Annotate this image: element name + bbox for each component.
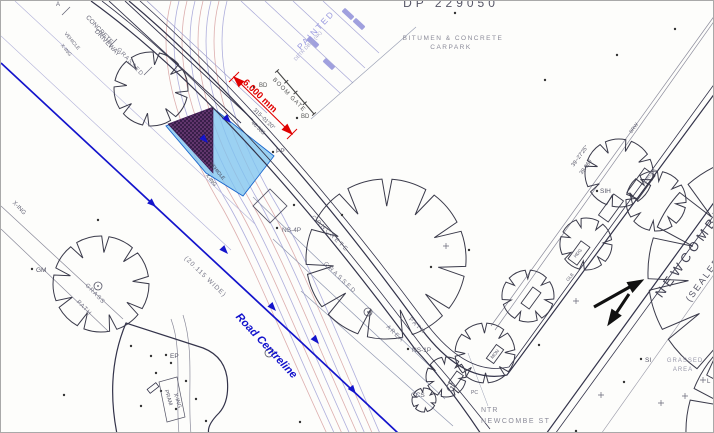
garden-bed-box xyxy=(599,194,624,222)
plus-mark xyxy=(573,298,579,304)
mon-label: MON xyxy=(490,348,501,359)
point-dot xyxy=(150,355,152,357)
circle-survey-dot xyxy=(367,311,369,313)
a-label: A xyxy=(56,2,60,8)
xing-label-3: X-ING xyxy=(11,200,27,216)
ntr-street-label: NEWCOMBE ST xyxy=(481,418,550,425)
point-dot xyxy=(674,28,676,30)
point-dot xyxy=(195,398,197,400)
point-dot xyxy=(31,268,33,270)
road-kerb-lines xyxy=(91,1,714,433)
painted-island-mark xyxy=(353,18,366,31)
grassed-label-left: GRASSED xyxy=(115,47,144,78)
tree-symbol xyxy=(585,139,653,207)
point-dot xyxy=(63,394,65,396)
point-dot xyxy=(205,420,207,422)
ns1p-label: NS-1P xyxy=(412,347,431,354)
distance-newcombe-label: 39.960 xyxy=(579,159,594,176)
xing-label-1: X-ING xyxy=(59,43,73,58)
turning-path-arcs xyxy=(166,1,380,433)
point-dot xyxy=(623,381,625,383)
garden-bed-box xyxy=(521,287,541,309)
tree-symbol xyxy=(686,316,714,433)
newcombe-street-name: NEWCOMBE xyxy=(652,202,714,300)
plus-mark xyxy=(682,393,688,399)
point-dot xyxy=(616,54,618,56)
path-label-left: PATH xyxy=(75,299,93,317)
point-dot xyxy=(538,344,540,346)
l-label: L xyxy=(707,379,711,385)
verge-and-path-lines xyxy=(1,1,714,433)
ntr-label: NTR xyxy=(481,407,498,414)
grassed-area-label-2: AREA xyxy=(673,367,693,373)
point-dot xyxy=(640,358,642,360)
point-dot xyxy=(185,380,187,382)
plus-mark xyxy=(700,377,706,383)
plus-mark xyxy=(598,392,604,398)
glb-label: GLB xyxy=(565,272,575,282)
garden-bed-boxes xyxy=(449,168,655,387)
garden-bed-outline xyxy=(113,323,228,433)
arrow-up-right xyxy=(627,275,645,292)
painted-island-mark xyxy=(342,8,355,21)
tree-symbol xyxy=(455,323,515,383)
tree-symbol xyxy=(502,270,554,322)
extension-tick xyxy=(62,7,70,15)
point-dot xyxy=(140,405,142,407)
point-dot xyxy=(293,204,295,206)
carpark-label-2: CARPARK xyxy=(430,44,471,51)
plus-mark xyxy=(443,243,449,249)
proposed-crossing-highlight xyxy=(166,107,274,196)
point-dot xyxy=(165,354,167,356)
point-dot xyxy=(407,348,409,350)
grass-label: GRASS xyxy=(84,283,106,306)
road-centreline-label: Road Centreline xyxy=(233,311,299,381)
tree-symbols xyxy=(53,52,714,433)
point-dot xyxy=(170,362,172,364)
sih-label: SIH xyxy=(600,188,611,195)
bd-label-2: BD xyxy=(301,114,310,120)
flow-arrowhead xyxy=(219,245,230,256)
ep-label: EP xyxy=(170,353,179,360)
site-plan-drawing: DP 229050 BITUMEN & CONCRETE CARPARK PAI… xyxy=(0,0,714,433)
pram-label: PRAM xyxy=(163,389,174,406)
point-dot xyxy=(596,190,598,192)
pc-label: PC xyxy=(471,390,478,396)
point-dot xyxy=(468,249,470,251)
concrete-label: CONCRETE xyxy=(310,215,350,254)
carpark-label-1: BITUMEN & CONCRETE xyxy=(403,35,504,42)
cad-canvas: DP 229050 BITUMEN & CONCRETE CARPARK PAI… xyxy=(1,1,714,433)
plus-mark xyxy=(658,400,664,406)
point-dot xyxy=(97,219,99,221)
point-dot xyxy=(544,79,546,81)
turning-arc xyxy=(222,1,380,433)
painted-island-mark xyxy=(323,58,336,71)
circle-survey-dot xyxy=(97,285,99,287)
text-labels: DP 229050 BITUMEN & CONCRETE CARPARK PAI… xyxy=(11,1,714,425)
road-width-label: (20.115 WIDE) xyxy=(183,255,228,299)
pp-label: PP xyxy=(276,148,285,155)
point-dot xyxy=(430,266,432,268)
circle-survey-dot xyxy=(450,386,452,388)
garden-bed-box xyxy=(449,371,464,387)
ccs-label: CCS xyxy=(411,392,425,399)
extension-tick xyxy=(144,67,152,75)
dp-number-label: DP 229050 xyxy=(403,1,499,10)
turning-arc xyxy=(190,1,350,433)
point-dot xyxy=(276,227,278,229)
point-dot xyxy=(130,345,132,347)
point-dot xyxy=(272,151,274,153)
grassed-area-label-1: GRASSED xyxy=(667,358,703,364)
point-dot xyxy=(155,372,157,374)
gm-label: GM xyxy=(36,267,46,274)
boom-gate-symbol xyxy=(275,69,316,115)
point-dot xyxy=(299,421,301,423)
tree-symbol xyxy=(306,179,466,339)
flow-arrowhead xyxy=(311,335,322,346)
point-dot xyxy=(575,430,577,432)
point-dot xyxy=(296,117,298,119)
si-label: SI xyxy=(645,357,651,364)
tree-symbol xyxy=(114,52,188,126)
point-dot xyxy=(454,12,456,14)
point-dot xyxy=(341,214,343,216)
hdg-label: HDG xyxy=(573,247,584,258)
ns4p-label: NS-4P xyxy=(282,227,301,234)
